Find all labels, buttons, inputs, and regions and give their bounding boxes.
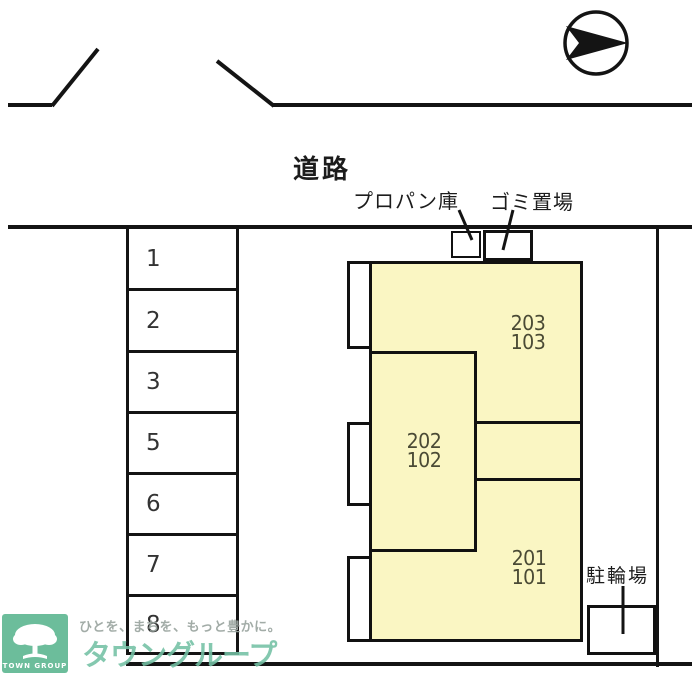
watermark-logo-text: TOWN GROUP	[3, 662, 68, 670]
garbage-leader-line	[503, 210, 513, 250]
tree-icon	[9, 622, 61, 662]
watermark-brand: タウングループ	[82, 632, 276, 674]
site-plan: 道路 1 2 3 5 6 7 8 203 103 202 102 201 101	[0, 0, 700, 678]
watermark-logo: TOWN GROUP	[2, 614, 68, 673]
leader-lines	[0, 0, 700, 678]
propane-leader-line	[459, 210, 472, 240]
